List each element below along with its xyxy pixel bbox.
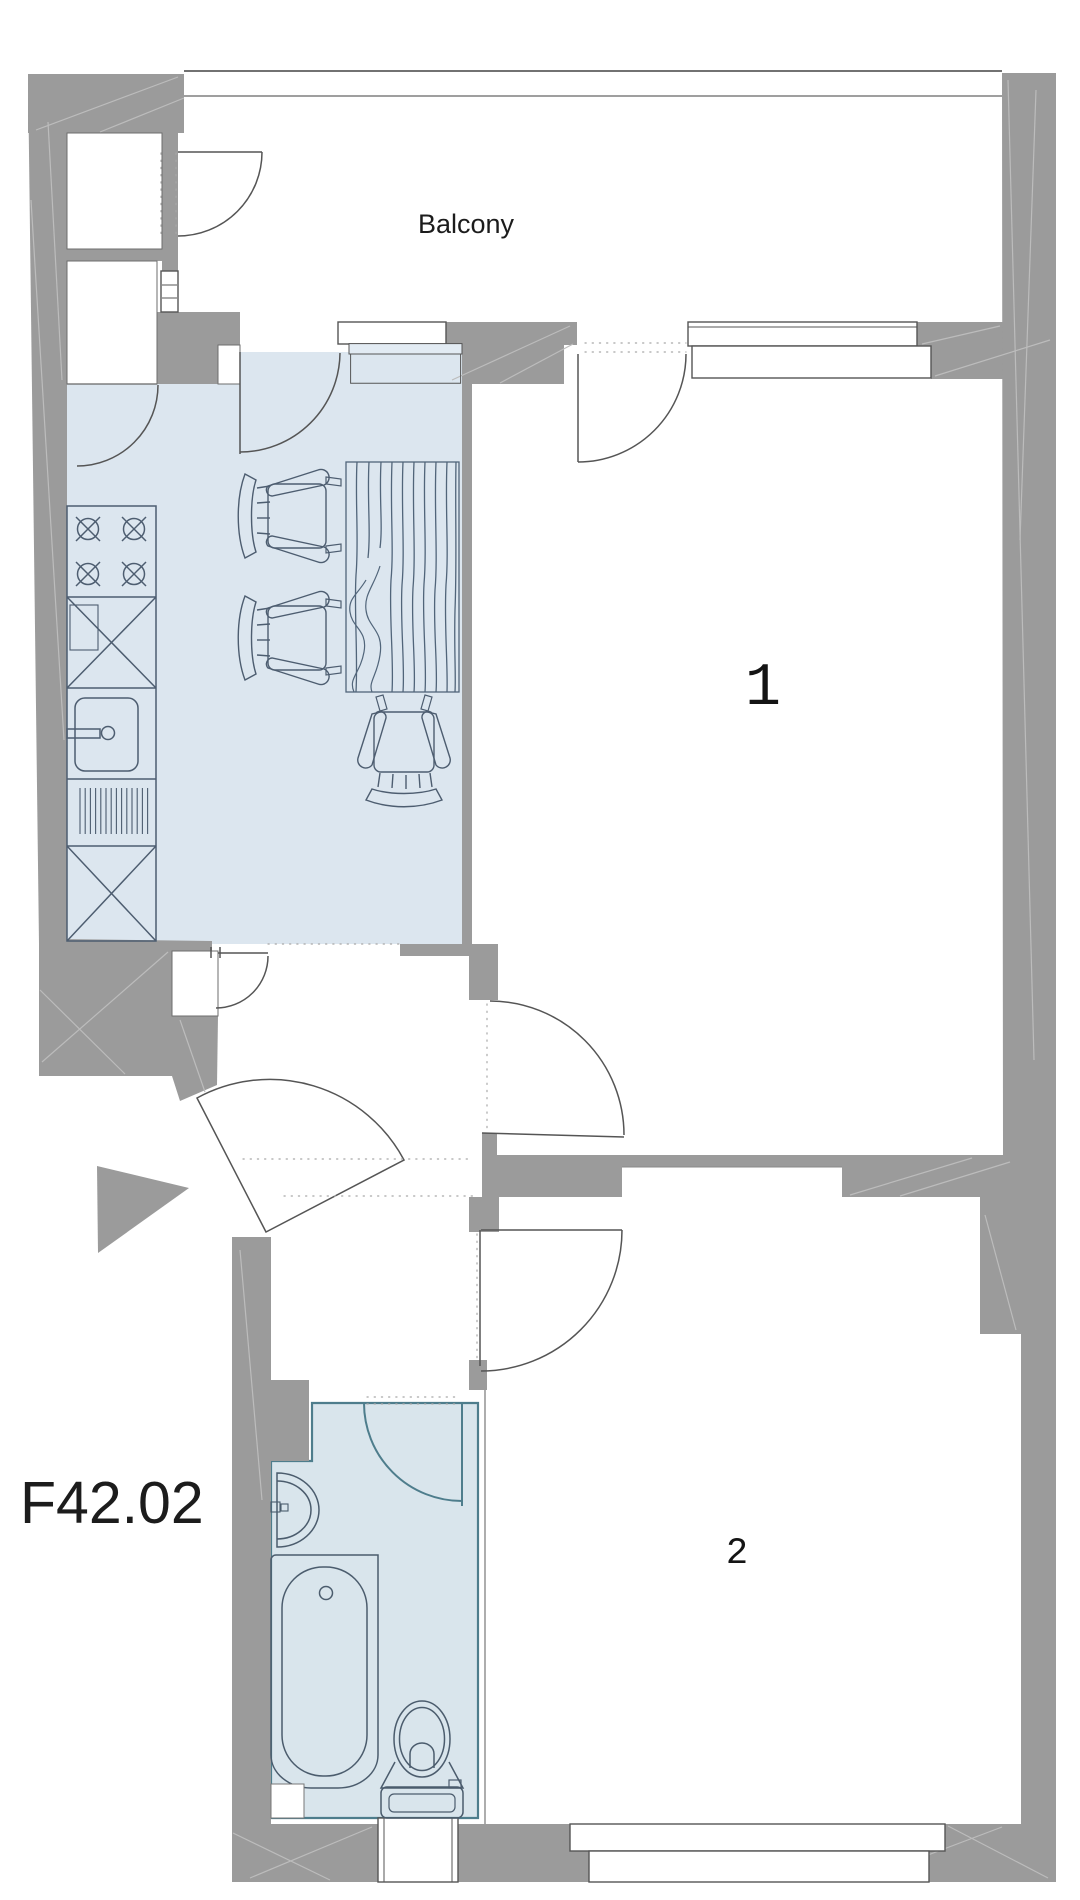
svg-text:Balcony: Balcony	[418, 209, 515, 239]
svg-text:F42.02: F42.02	[20, 1470, 204, 1536]
svg-text:1: 1	[745, 655, 781, 723]
svg-text:2: 2	[726, 1533, 748, 1575]
